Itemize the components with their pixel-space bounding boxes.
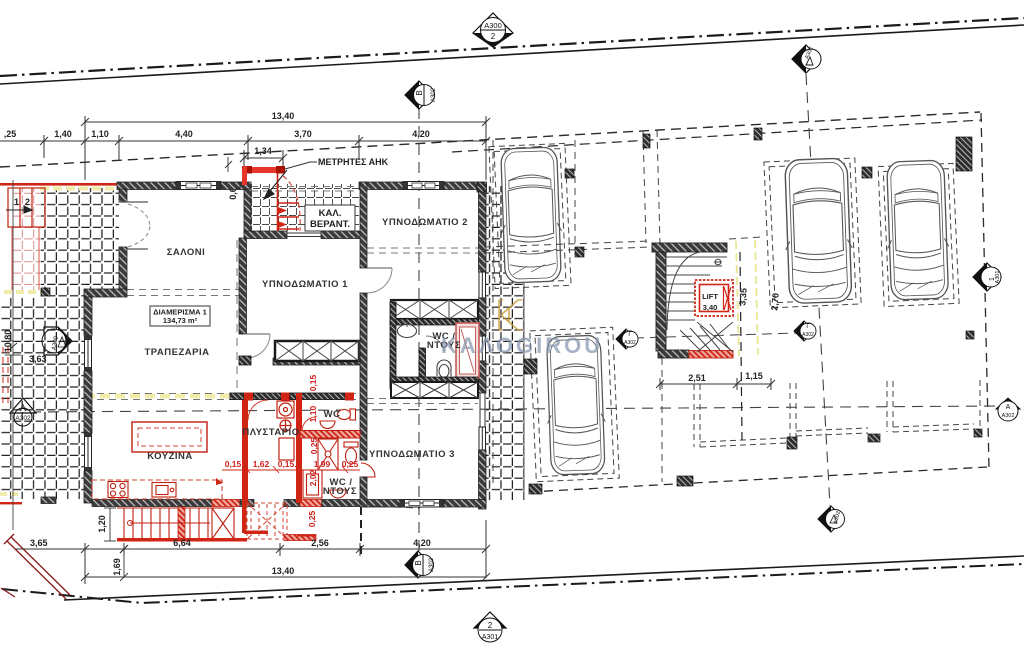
svg-text:WC: WC [324, 409, 341, 420]
svg-text:ΒΕΡΑΝΤ.: ΒΕΡΑΝΤ. [310, 219, 350, 230]
svg-text:ΥΠΝΟΔΩΜΑΤΙΟ 3: ΥΠΝΟΔΩΜΑΤΙΟ 3 [369, 449, 455, 460]
svg-text:2: 2 [25, 197, 30, 207]
svg-text:2,56: 2,56 [311, 538, 329, 548]
svg-text:2: 2 [488, 621, 493, 630]
svg-text:ΜΕΤΡΗΤΕΣ ΑΗΚ: ΜΕΤΡΗΤΕΣ ΑΗΚ [318, 157, 389, 167]
svg-text:ΣΑΛΟΝΙ: ΣΑΛΟΝΙ [167, 247, 206, 258]
svg-text:A301: A301 [995, 271, 1001, 284]
svg-text:ΚΑΛΟGIROU: ΚΑΛΟGIROU [441, 333, 603, 358]
svg-text:LIFT: LIFT [702, 292, 718, 301]
svg-text:4,20: 4,20 [413, 538, 431, 548]
svg-text:A302: A302 [624, 340, 636, 346]
svg-text:ΚΑΛ.: ΚΑΛ. [319, 208, 342, 219]
svg-text:4,20: 4,20 [412, 129, 430, 139]
svg-text:1,10: 1,10 [91, 129, 109, 139]
svg-text:0,15: 0,15 [278, 459, 295, 469]
svg-text:1,69: 1,69 [112, 558, 122, 576]
svg-text:1,20: 1,20 [97, 515, 107, 533]
svg-text:A: A [1006, 404, 1011, 411]
svg-text:2,70: 2,70 [769, 293, 780, 311]
svg-text:134,73 m²: 134,73 m² [163, 316, 198, 325]
svg-text:2,02: 2,02 [308, 469, 318, 486]
svg-text:0,15: 0,15 [225, 459, 242, 469]
svg-text:B: B [415, 90, 424, 95]
svg-text:1,15: 1,15 [745, 371, 763, 381]
svg-text:0,25: 0,25 [309, 437, 319, 454]
svg-text:ΥΠΝΟΔΩΜΑΤΙΟ 1: ΥΠΝΟΔΩΜΑΤΙΟ 1 [262, 279, 348, 290]
svg-text:ΤΡΑΠΕΖΑΡΙΑ: ΤΡΑΠΕΖΑΡΙΑ [145, 347, 210, 358]
svg-text:ΝΤΟΥΣ: ΝΤΟΥΣ [323, 486, 357, 497]
svg-text:ΠΛΥΣΤΑΡΙΟ: ΠΛΥΣΤΑΡΙΟ [242, 427, 299, 438]
svg-text:1,99: 1,99 [314, 459, 331, 469]
svg-text:A302: A302 [802, 332, 814, 338]
svg-text:10,80: 10,80 [3, 330, 13, 353]
svg-text:6,64: 6,64 [173, 538, 191, 548]
svg-text:A300: A300 [484, 21, 502, 30]
svg-text:2,51: 2,51 [688, 373, 706, 383]
svg-text:0,15: 0,15 [308, 374, 318, 391]
svg-text:A302: A302 [429, 557, 435, 572]
svg-text:3,70: 3,70 [294, 129, 312, 139]
svg-text:3,35: 3,35 [737, 288, 748, 306]
svg-text:3,40: 3,40 [703, 303, 718, 312]
svg-text:ΥΠΝΟΔΩΜΑΤΙΟ 2: ΥΠΝΟΔΩΜΑΤΙΟ 2 [382, 217, 468, 228]
svg-text:A302: A302 [1002, 413, 1015, 419]
svg-text:3,63: 3,63 [29, 354, 47, 364]
svg-text:A302: A302 [431, 87, 437, 102]
svg-text:0,25: 0,25 [342, 459, 359, 469]
svg-text:1,10: 1,10 [308, 405, 318, 422]
svg-text:0,25: 0,25 [307, 510, 317, 527]
svg-text:1,62: 1,62 [253, 459, 270, 469]
svg-text:13,40: 13,40 [272, 566, 295, 576]
svg-text:,25: ,25 [4, 129, 17, 139]
svg-text:A301: A301 [482, 634, 498, 641]
svg-text:B: B [414, 560, 423, 565]
svg-text:1,40: 1,40 [54, 129, 72, 139]
svg-text:1: 1 [14, 197, 19, 207]
svg-text:1,34: 1,34 [254, 146, 272, 156]
svg-text:3,65: 3,65 [30, 538, 48, 548]
svg-text:13,40: 13,40 [272, 111, 295, 121]
svg-text:2: 2 [491, 32, 496, 41]
svg-text:4,40: 4,40 [175, 129, 193, 139]
svg-text:ΚΟΥΖΙΝΑ: ΚΟΥΖΙΝΑ [147, 451, 193, 462]
